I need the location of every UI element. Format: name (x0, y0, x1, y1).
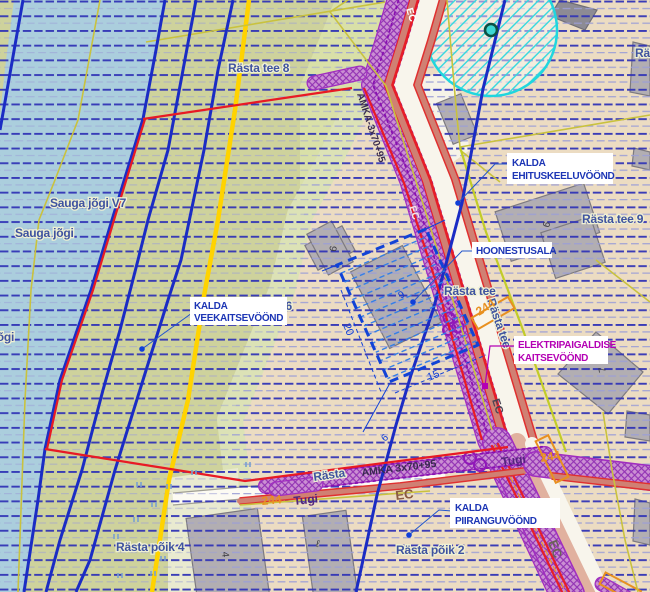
svg-text:KALDA: KALDA (194, 301, 228, 312)
svg-text:EHITUSKEELUVÖÖND: EHITUSKEELUVÖÖND (512, 169, 615, 182)
svg-text:PIIRANGUVÖÖND: PIIRANGUVÖÖND (455, 514, 537, 527)
svg-text:a jõgi: a jõgi (0, 330, 14, 344)
svg-text:HOONESTUSALA: HOONESTUSALA (476, 246, 556, 257)
svg-text:Rästa põik 2: Rästa põik 2 (396, 543, 465, 557)
svg-text:KALDA: KALDA (512, 158, 546, 169)
svg-text:VEEKAITSEVÖÖND: VEEKAITSEVÖÖND (194, 311, 283, 324)
svg-text:Rästa tee: Rästa tee (444, 284, 496, 298)
svg-text:KAITSEVÖÖND: KAITSEVÖÖND (518, 351, 588, 364)
svg-text:EC: EC (395, 486, 415, 503)
svg-text:Tugi: Tugi (293, 492, 319, 508)
svg-text:Rästa tee 8: Rästa tee 8 (228, 61, 290, 75)
svg-text:KALDA: KALDA (455, 503, 489, 514)
svg-text:Sauga jõgi V7: Sauga jõgi V7 (50, 196, 127, 210)
svg-text:Rästa põik 4: Rästa põik 4 (116, 540, 185, 554)
svg-text:ELEKTRIPAIGALDISE: ELEKTRIPAIGALDISE (518, 340, 617, 351)
svg-text:Rä: Rä (635, 46, 650, 60)
svg-text:244: 244 (261, 492, 282, 508)
svg-text:Sauga jõgi: Sauga jõgi (15, 226, 74, 240)
svg-text:Rästa tee 9: Rästa tee 9 (582, 212, 644, 226)
